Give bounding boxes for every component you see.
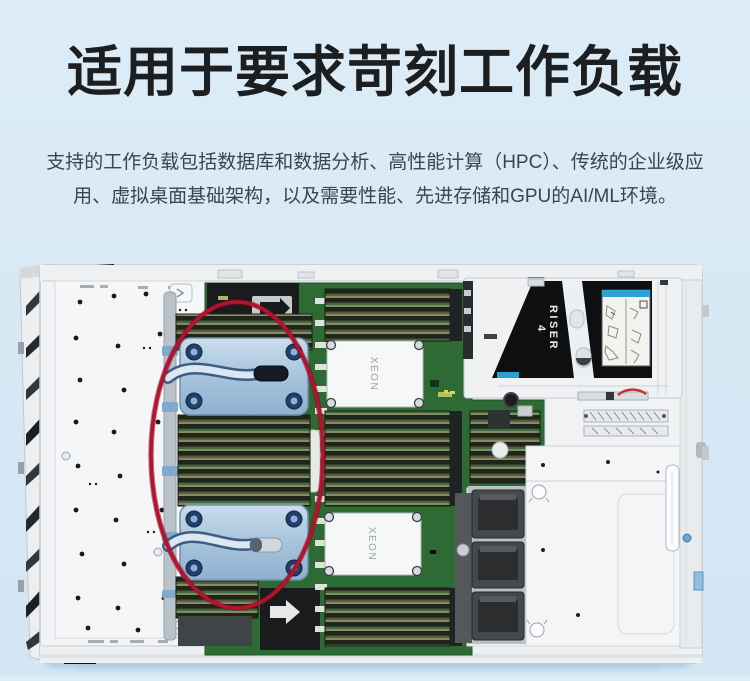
riser-4-assembly: RISER 4 bbox=[463, 278, 682, 398]
cpu-socket-2: XEON bbox=[325, 513, 422, 576]
cpu-label: XEON bbox=[366, 527, 377, 561]
riser-service-tag bbox=[497, 372, 519, 378]
right-bay bbox=[526, 446, 680, 646]
handle-tab bbox=[570, 310, 584, 328]
label-header bbox=[602, 290, 650, 297]
panel-screw bbox=[62, 452, 70, 460]
dimm-bank bbox=[325, 289, 450, 341]
power-connectors bbox=[455, 486, 528, 644]
server-internals-photo: XEON XEON bbox=[18, 250, 732, 676]
blue-tab bbox=[694, 572, 703, 590]
cpu-label: XEON bbox=[368, 357, 379, 391]
cpu-socket-1: XEON bbox=[327, 341, 424, 408]
panel-screw bbox=[154, 548, 162, 556]
page-title: 适用于要求苛刻工作负载 bbox=[0, 40, 750, 104]
liquid-cooling-module-bottom bbox=[168, 505, 308, 580]
dimm-bank bbox=[325, 411, 450, 506]
liquid-cooling-module-top bbox=[168, 338, 308, 415]
latch-mark bbox=[484, 334, 497, 339]
connector-block bbox=[472, 490, 524, 538]
connector-block bbox=[472, 542, 524, 588]
tube-fitting bbox=[254, 366, 288, 381]
riser-label: RISER bbox=[547, 305, 559, 351]
blue-screw bbox=[683, 534, 691, 542]
instruction-label bbox=[602, 290, 650, 366]
dimm-bank bbox=[178, 415, 310, 506]
round-knob bbox=[504, 393, 518, 407]
page-subtitle: 支持的工作负载包括数据库和数据分析、高性能计算（HPC）、传统的企业级应用、虚拟… bbox=[40, 146, 710, 214]
subtitle-line-2: 用、虚拟桌面基础架构，以及需要性能、先进存储和GPU的AI/ML环境。 bbox=[73, 186, 677, 207]
dimm-bank bbox=[325, 588, 450, 646]
riser-number: 4 bbox=[535, 325, 547, 332]
subtitle-line-1: 支持的工作负载包括数据库和数据分析、高性能计算（HPC）、传统的企业级应 bbox=[46, 152, 704, 173]
right-wall bbox=[680, 280, 709, 648]
connector-block bbox=[472, 592, 524, 640]
